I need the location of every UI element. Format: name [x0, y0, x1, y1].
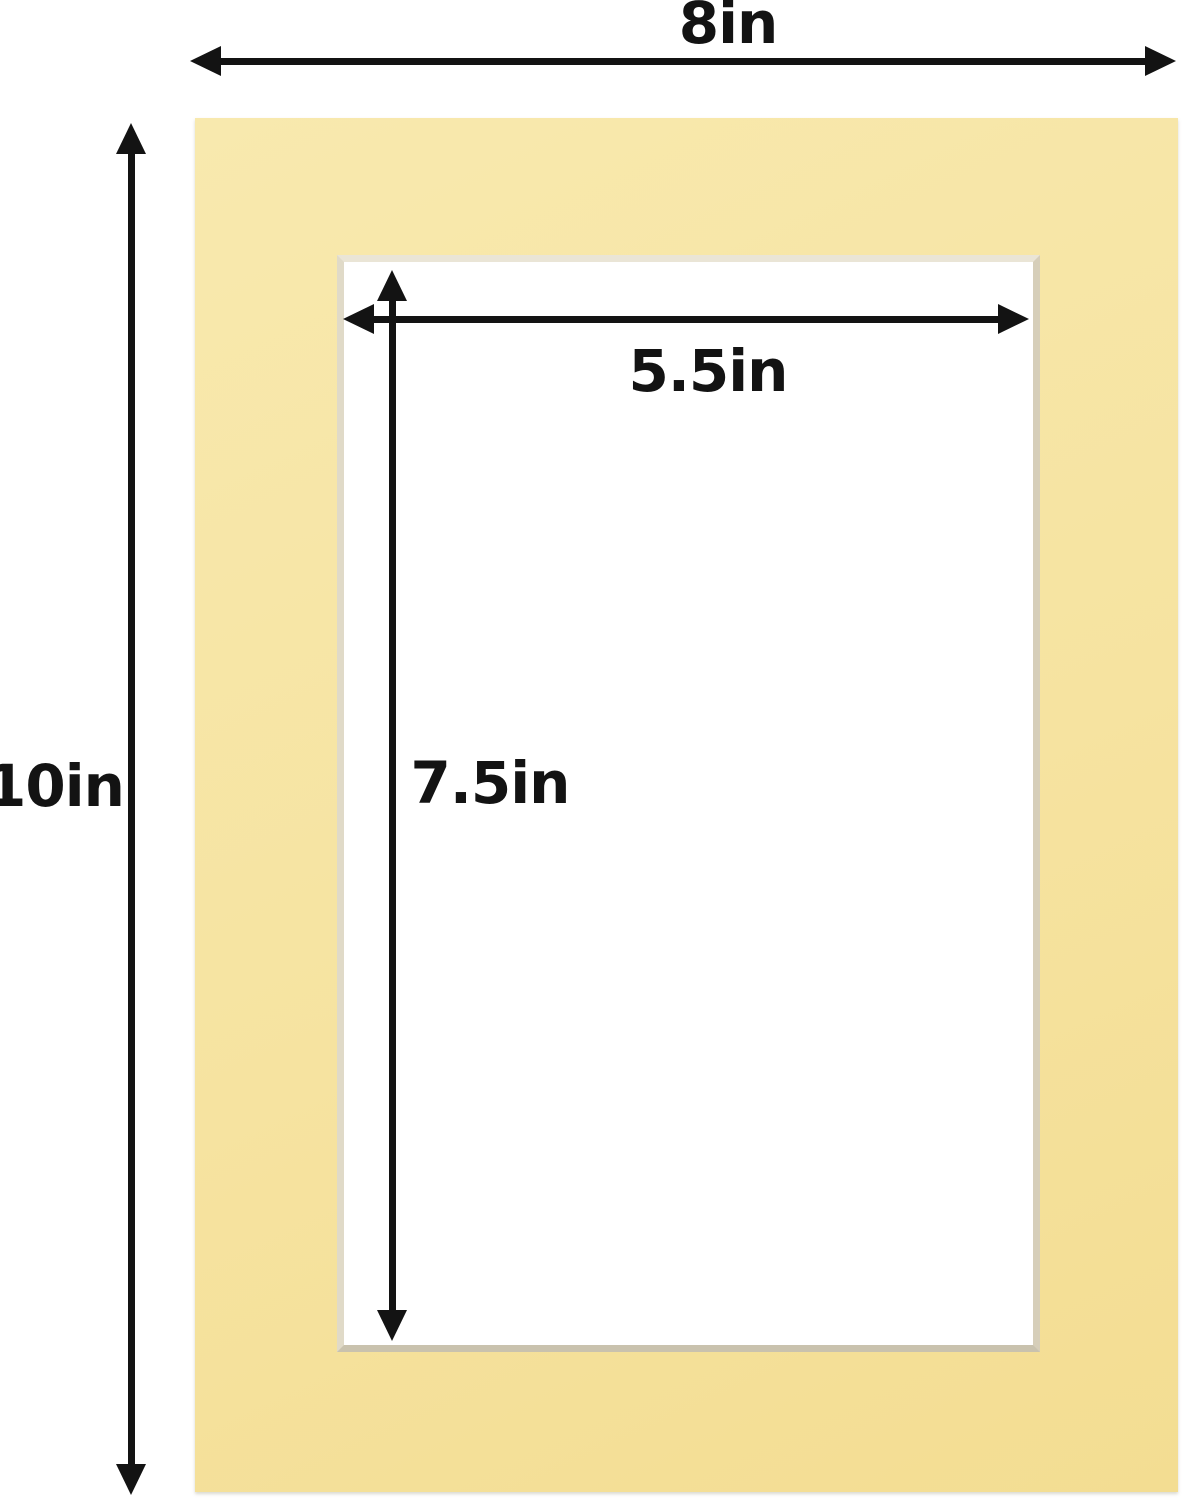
outer-width-label: 8in: [628, 0, 828, 52]
arrowhead-down-icon: [116, 1464, 146, 1495]
arrowhead-up-icon: [116, 123, 146, 154]
arrowhead-down-icon: [377, 1310, 407, 1341]
opening-width-arrow: [343, 304, 1029, 334]
arrow-shaft: [212, 58, 1154, 65]
dimension-diagram: 8in 10in 5.5in 7.5in: [0, 0, 1184, 1500]
arrowhead-left-icon: [343, 304, 374, 334]
arrowhead-left-icon: [190, 46, 221, 76]
outer-height-label: 10in: [0, 757, 155, 815]
arrowhead-right-icon: [998, 304, 1029, 334]
opening-width-label: 5.5in: [608, 342, 808, 400]
arrowhead-right-icon: [1145, 46, 1176, 76]
arrowhead-up-icon: [377, 270, 407, 301]
arrow-shaft: [365, 316, 1007, 323]
opening-height-label: 7.5in: [390, 754, 590, 812]
